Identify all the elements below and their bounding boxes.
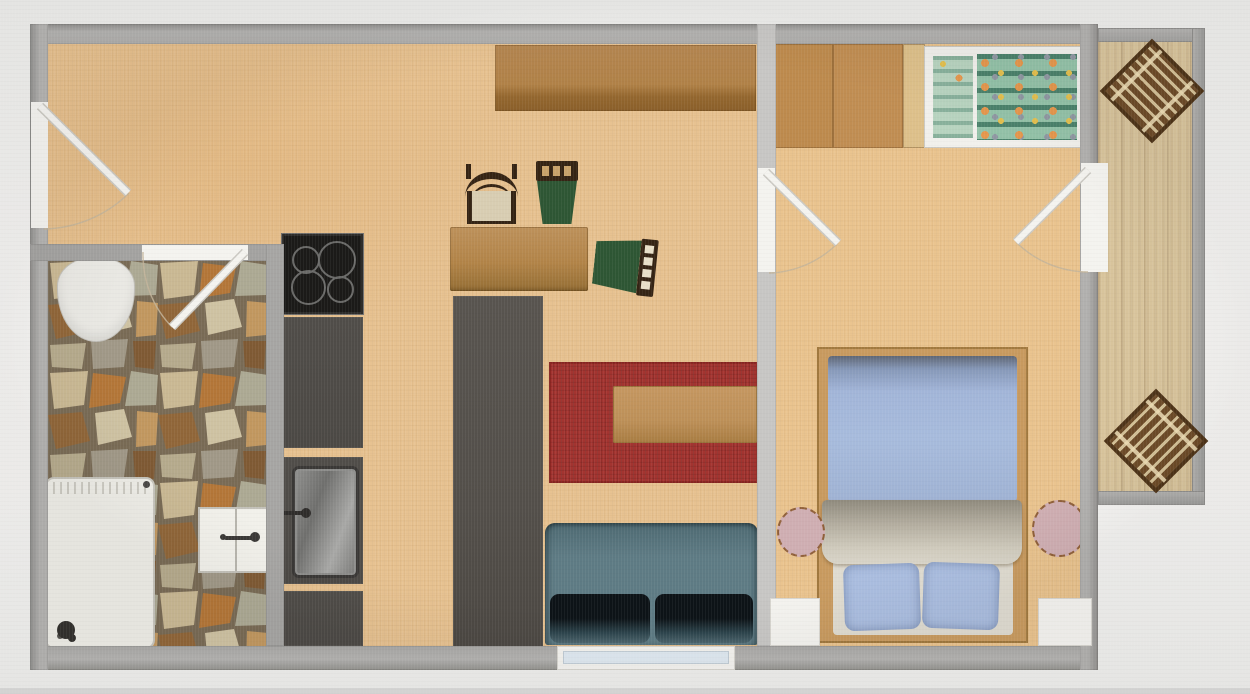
balcony-rail-bottom [1098, 491, 1205, 505]
kitchen-sink-unit [283, 457, 363, 584]
photo-edge-shadow [0, 688, 1250, 694]
sink-basin-icon [292, 466, 359, 578]
crib-blanket [977, 54, 1077, 140]
faucet-icon [280, 511, 307, 515]
bathroom-door-opening [142, 245, 248, 260]
shower-tray [45, 477, 155, 649]
kitchen-counter-upper [283, 317, 363, 448]
wall-bathroom-right [266, 244, 284, 646]
sideboard [495, 45, 756, 111]
valve-icon [143, 481, 150, 488]
sofa [545, 523, 758, 645]
sofa-cushion [550, 594, 650, 643]
crib-pillow [933, 56, 973, 138]
burner-icon [318, 241, 356, 279]
bed-duvet [828, 356, 1017, 504]
wall-living-bedroom [757, 24, 776, 646]
chair-beige-upholstered [462, 164, 521, 226]
dining-table [450, 227, 588, 291]
wall-top [30, 24, 1098, 44]
wall-right [1080, 24, 1098, 670]
bed-blanket [822, 500, 1022, 564]
crib-patterned-bed [925, 47, 1085, 147]
bedroom-window-right [1038, 598, 1092, 646]
wardrobe [773, 44, 925, 148]
kitchen-counter-lower [283, 591, 363, 646]
entry-door-opening [31, 102, 48, 228]
drain-icon [57, 621, 75, 639]
sofa-cushion [655, 594, 753, 643]
cooktop-icon [281, 233, 364, 315]
coffee-table [613, 386, 757, 443]
floor-plan-photo [0, 0, 1250, 694]
burner-icon [327, 276, 354, 303]
double-bed [817, 347, 1028, 643]
living-window-glass [563, 651, 729, 664]
chair-green-1 [536, 159, 578, 224]
nightstand-round-left [777, 507, 825, 557]
bed-pillow [922, 562, 1000, 631]
chair-green-2 [591, 234, 659, 297]
balcony-door-opening [1081, 163, 1108, 272]
bedroom-window-left [770, 598, 820, 646]
bed-pillow [843, 563, 921, 632]
island-counter [453, 296, 543, 648]
bedroom-door-opening [758, 168, 775, 272]
radiator-icon [53, 482, 147, 494]
burner-icon [291, 270, 326, 305]
washbasin [198, 507, 272, 573]
nightstand-round-right [1032, 500, 1087, 557]
